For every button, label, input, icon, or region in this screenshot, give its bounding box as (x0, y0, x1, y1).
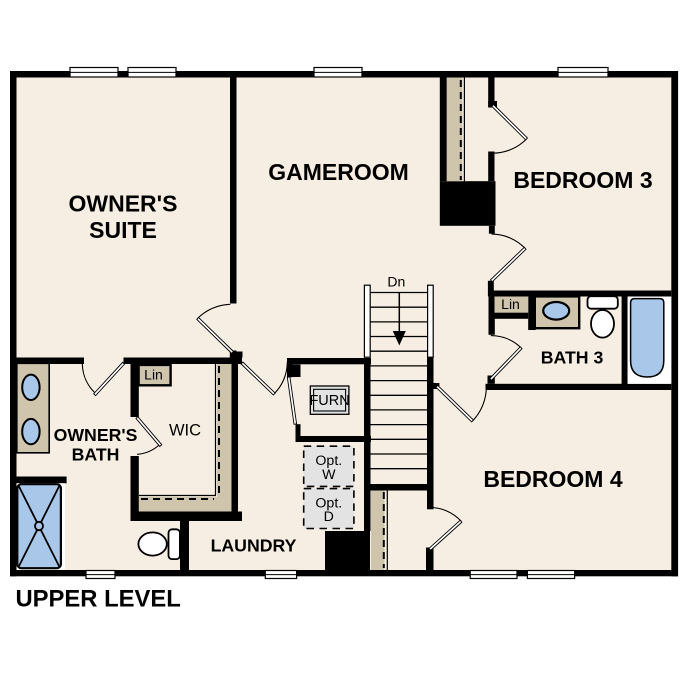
svg-text:WIC: WIC (169, 422, 201, 440)
svg-text:LAUNDRY: LAUNDRY (211, 536, 297, 556)
svg-text:BEDROOM 3: BEDROOM 3 (513, 167, 652, 193)
svg-text:GAMEROOM: GAMEROOM (268, 159, 409, 185)
svg-text:OWNER'S: OWNER'S (54, 425, 138, 445)
svg-text:BATH 3: BATH 3 (541, 348, 604, 368)
svg-text:Dn: Dn (387, 274, 405, 290)
svg-text:OWNER'S: OWNER'S (69, 191, 178, 217)
svg-text:D: D (324, 509, 334, 525)
svg-text:Lin: Lin (501, 296, 520, 312)
svg-text:BEDROOM 4: BEDROOM 4 (483, 466, 623, 492)
svg-text:UPPER LEVEL: UPPER LEVEL (16, 586, 181, 613)
svg-text:FURN: FURN (309, 393, 349, 409)
svg-text:W: W (322, 467, 336, 483)
svg-text:BATH: BATH (72, 445, 120, 465)
svg-text:SUITE: SUITE (89, 217, 157, 243)
svg-text:Lin: Lin (144, 366, 163, 382)
